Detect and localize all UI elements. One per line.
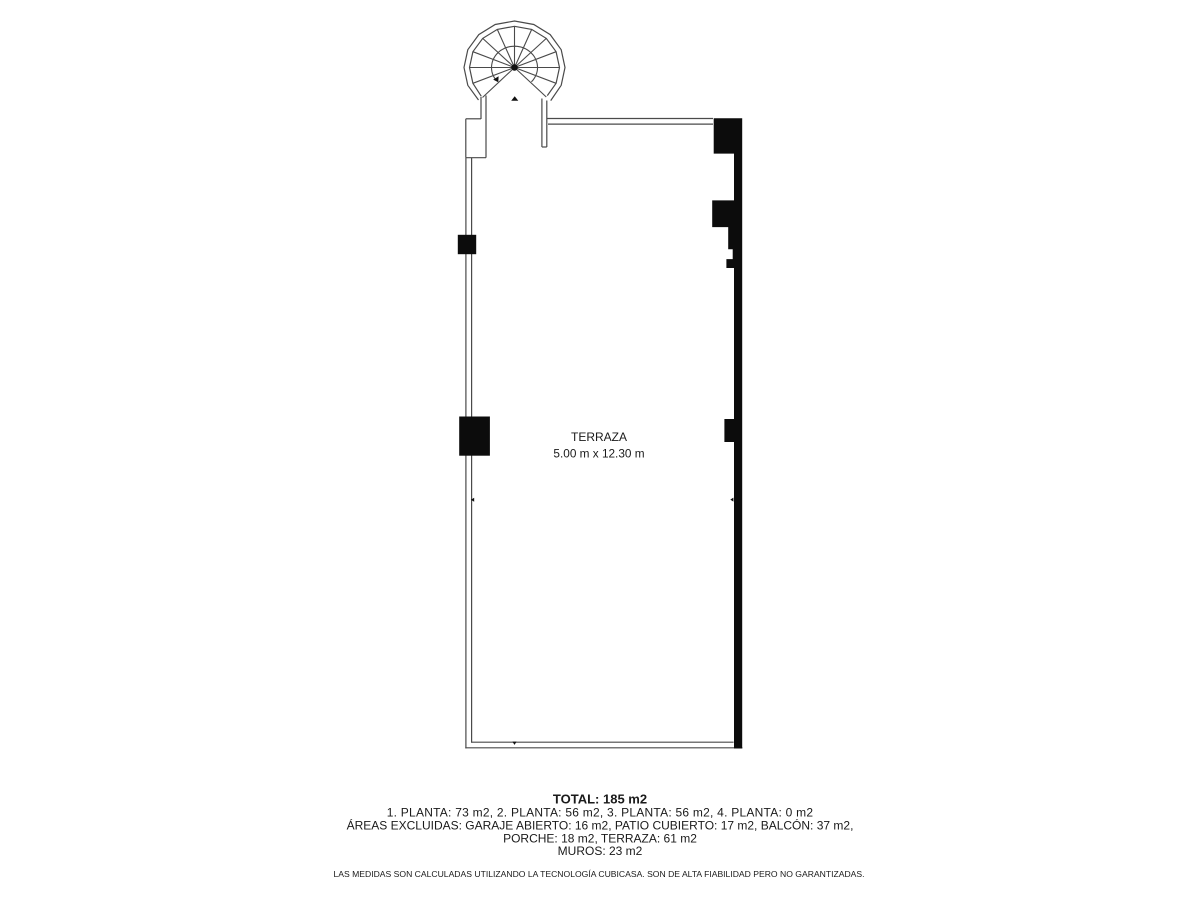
svg-text:5.00 m x 12.30 m: 5.00 m x 12.30 m (553, 447, 644, 461)
svg-text:ÁREAS EXCLUIDAS: GARAJE ABIERT: ÁREAS EXCLUIDAS: GARAJE ABIERTO: 16 m2, … (347, 817, 854, 832)
svg-text:TERRAZA: TERRAZA (571, 430, 627, 444)
svg-text:LAS MEDIDAS SON CALCULADAS UTI: LAS MEDIDAS SON CALCULADAS UTILIZANDO LA… (333, 869, 864, 879)
svg-text:TOTAL: 185 m2: TOTAL: 185 m2 (553, 791, 647, 806)
svg-text:1. PLANTA: 73 m2, 2. PLANTA: 5: 1. PLANTA: 73 m2, 2. PLANTA: 56 m2, 3. P… (387, 805, 814, 819)
svg-text:MUROS: 23 m2: MUROS: 23 m2 (558, 844, 643, 858)
